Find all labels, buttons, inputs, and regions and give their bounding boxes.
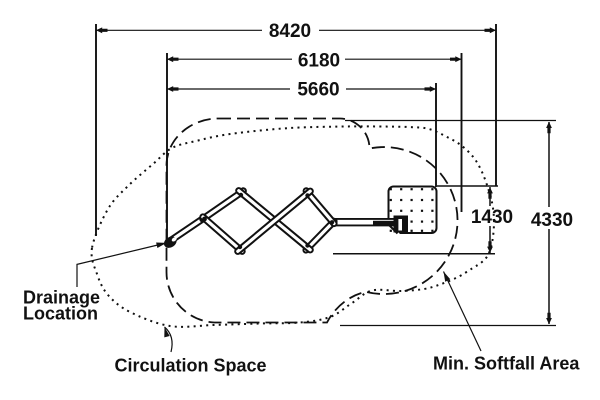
svg-text:Location: Location: [23, 304, 98, 324]
svg-text:6180: 6180: [298, 51, 340, 72]
svg-text:4330: 4330: [531, 210, 573, 231]
svg-text:8420: 8420: [269, 21, 311, 42]
svg-text:Min. Softfall Area: Min. Softfall Area: [433, 354, 580, 374]
svg-text:5660: 5660: [297, 80, 339, 101]
svg-text:1430: 1430: [471, 207, 513, 228]
svg-text:Circulation Space: Circulation Space: [115, 356, 267, 376]
